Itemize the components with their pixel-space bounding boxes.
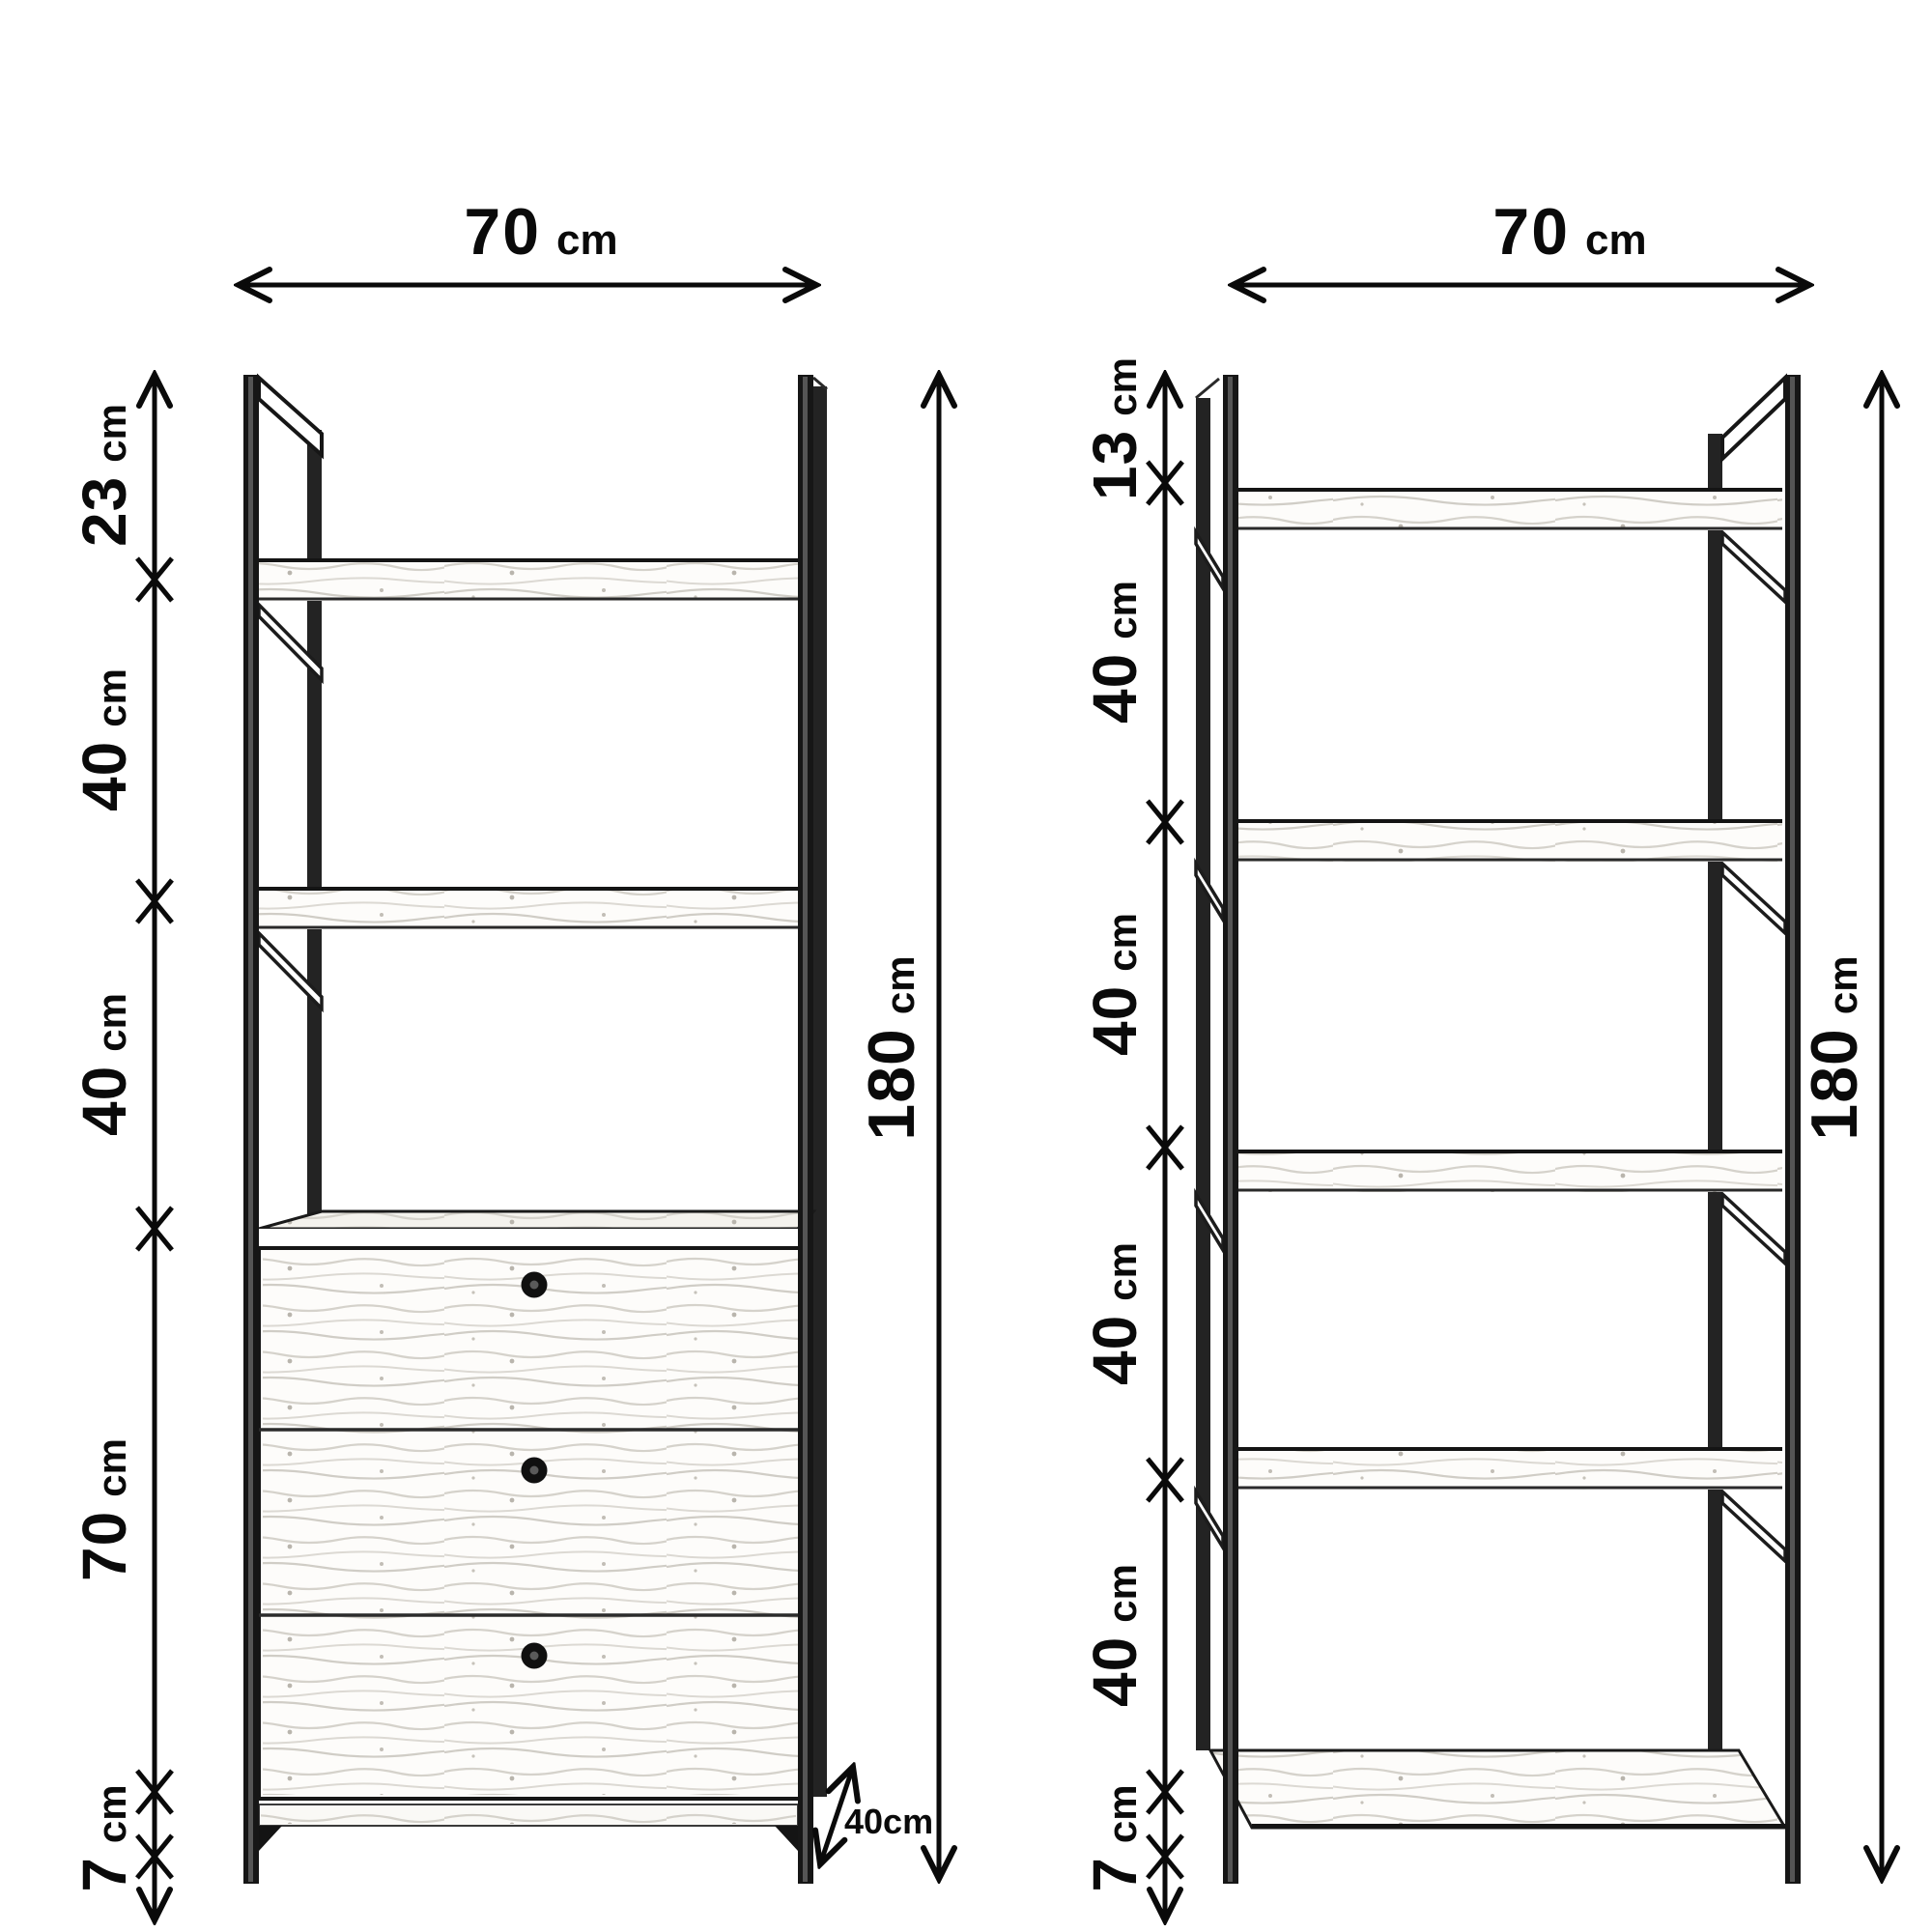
drawer-knob	[522, 1643, 548, 1669]
right-unit-shelf-3	[1196, 1150, 1785, 1264]
cabinet-plinth-grain	[261, 1806, 796, 1824]
left-foot-wedge	[259, 1826, 282, 1851]
left-unit-shelf-1	[259, 558, 798, 680]
shelf-grain	[259, 558, 798, 601]
left-unit-shelf-2	[259, 887, 798, 1009]
right-foot-wedge	[775, 1826, 798, 1851]
shelf-support	[1722, 864, 1785, 933]
right-total-height-label: 180cm	[1798, 955, 1871, 1140]
right-unit-shelf-2	[1196, 819, 1785, 933]
right-section-label-3: 40cm	[1080, 1242, 1150, 1385]
shelf-grain	[1238, 819, 1782, 862]
right-unit-shelf-1	[1196, 488, 1785, 602]
furniture-dimension-diagram: 70cm 23cm 40cm 40cm 70cm	[0, 0, 1932, 1932]
left-unit-front-left-post	[243, 375, 259, 1884]
diagram-canvas: 70cm 23cm 40cm 40cm 70cm	[0, 0, 1932, 1932]
right-unit-front-left-post	[1223, 375, 1238, 1884]
left-section-label-1: 40cm	[70, 668, 139, 811]
right-section-label-4: 40cm	[1080, 1564, 1150, 1707]
right-unit-shelf-5	[1210, 1750, 1785, 1828]
left-unit-back-right-post	[813, 386, 827, 1797]
left-section-label-3: 70cm	[70, 1438, 139, 1581]
left-unit-back-left-post	[307, 430, 322, 1229]
left-unit-front-right-post	[798, 375, 813, 1884]
right-unit-back-left-post-cap	[1196, 379, 1219, 398]
left-depth-label: 40cm	[844, 1802, 933, 1841]
left-section-label-0: 23cm	[70, 404, 139, 547]
drawer-knob	[522, 1458, 548, 1484]
shelf-grain	[259, 887, 798, 929]
left-unit-top-rail	[259, 378, 322, 455]
right-section-label-2: 40cm	[1080, 913, 1150, 1056]
shelf-support	[1722, 1492, 1785, 1561]
shelf-grain	[1238, 1150, 1782, 1192]
right-unit-shelf-4	[1196, 1447, 1785, 1561]
right-unit-back-right-post	[1708, 434, 1722, 1750]
left-section-label-4: 7cm	[70, 1784, 139, 1891]
right-unit-top-rail	[1722, 378, 1785, 459]
left-section-label-2: 40cm	[70, 993, 139, 1136]
shelf-support	[1722, 1194, 1785, 1264]
cabinet-top-band	[259, 1229, 798, 1248]
right-section-label-1: 40cm	[1080, 581, 1150, 724]
drawer-knob	[522, 1272, 548, 1298]
left-unit-drawer-cabinet	[259, 1211, 813, 1851]
right-unit-drawing	[1196, 375, 1801, 1884]
left-unit-drawing	[243, 375, 827, 1884]
left-total-height-label: 180cm	[855, 955, 928, 1140]
shelf-grain	[1238, 1447, 1782, 1490]
shelf-support	[1722, 532, 1785, 602]
cabinet-top-grain	[259, 1211, 813, 1229]
right-section-label-0: 13cm	[1080, 357, 1150, 500]
shelf-grain	[1238, 488, 1782, 530]
right-section-label-5: 7cm	[1080, 1784, 1150, 1891]
right-unit-back-left-post	[1196, 398, 1210, 1750]
left-width-label: 70cm	[464, 195, 617, 269]
right-width-label: 70cm	[1492, 195, 1646, 269]
shelf-grain	[1210, 1750, 1785, 1828]
cabinet-grain	[263, 1252, 806, 1795]
